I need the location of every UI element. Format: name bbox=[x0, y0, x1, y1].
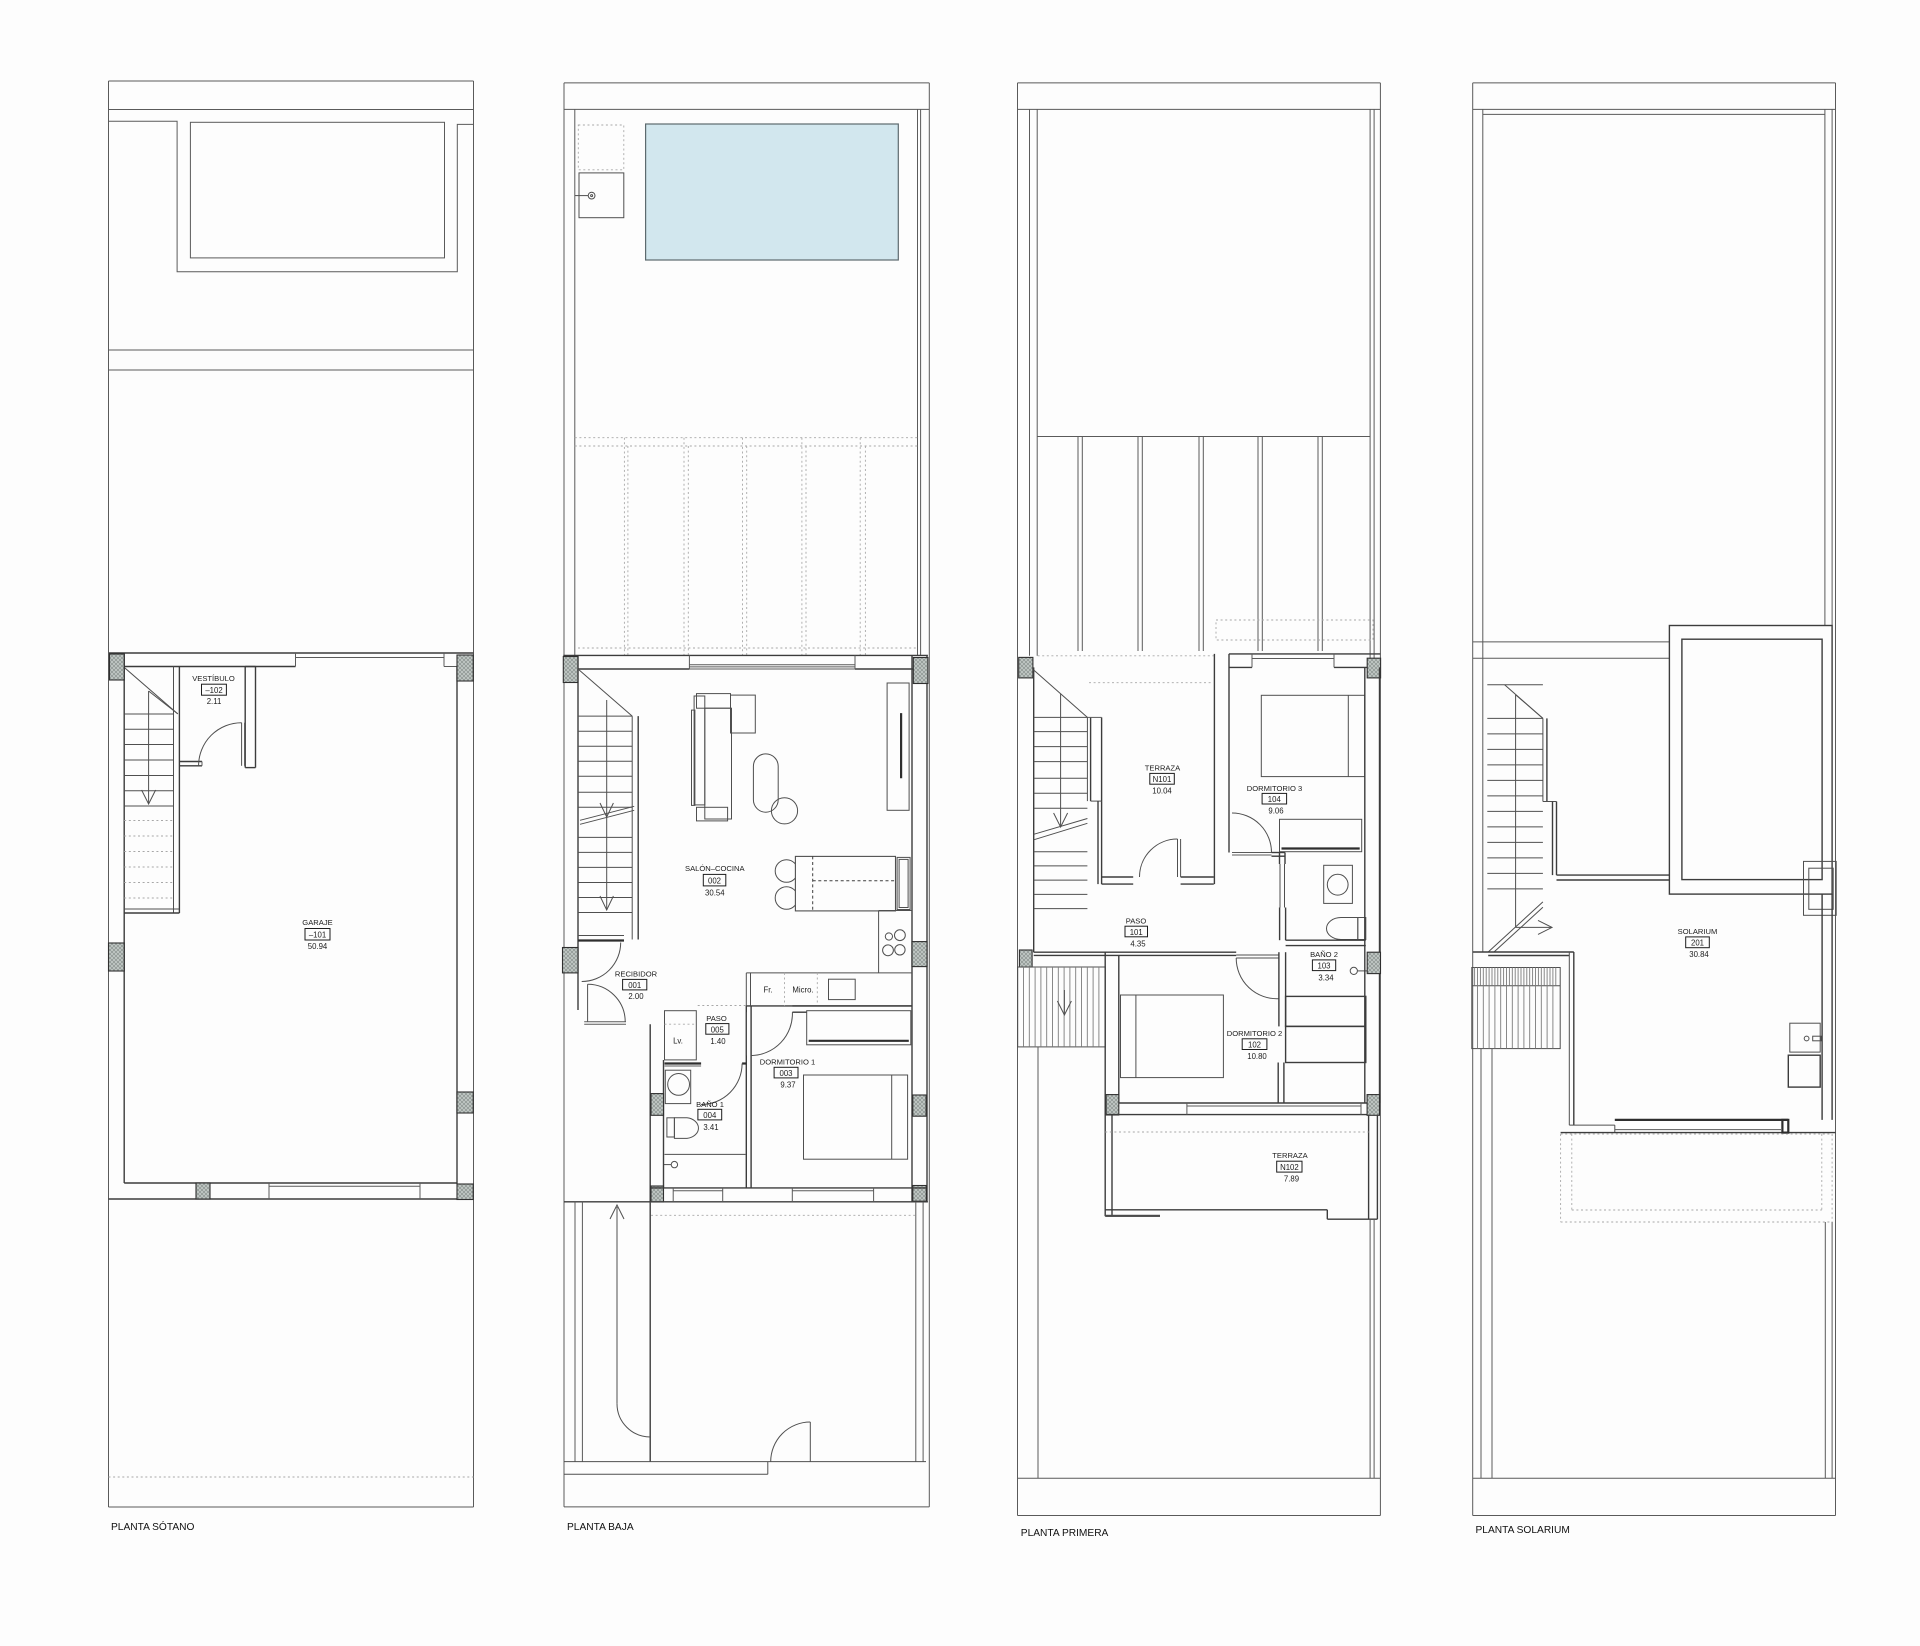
svg-text:002: 002 bbox=[708, 877, 721, 886]
svg-text:PLANTA BAJA: PLANTA BAJA bbox=[567, 1522, 634, 1533]
svg-text:TERRAZA: TERRAZA bbox=[1145, 764, 1181, 773]
svg-text:104: 104 bbox=[1268, 795, 1282, 804]
svg-text:001: 001 bbox=[628, 981, 641, 990]
svg-text:–102: –102 bbox=[205, 686, 222, 695]
svg-text:005: 005 bbox=[711, 1025, 725, 1034]
svg-text:GARAJE: GARAJE bbox=[302, 918, 332, 927]
svg-text:DORMITORIO 2: DORMITORIO 2 bbox=[1227, 1029, 1283, 1038]
svg-text:N102: N102 bbox=[1280, 1163, 1299, 1172]
svg-text:50.94: 50.94 bbox=[308, 942, 328, 951]
svg-text:RECIBIDOR: RECIBIDOR bbox=[615, 970, 658, 979]
svg-text:1.40: 1.40 bbox=[710, 1037, 726, 1046]
svg-text:9.06: 9.06 bbox=[1268, 807, 1283, 816]
svg-text:PASO: PASO bbox=[1126, 917, 1147, 926]
svg-text:4.35: 4.35 bbox=[1130, 940, 1146, 949]
svg-text:30.84: 30.84 bbox=[1689, 950, 1709, 959]
svg-text:Micro.: Micro. bbox=[792, 986, 813, 995]
svg-text:TERRAZA: TERRAZA bbox=[1272, 1151, 1308, 1160]
svg-text:30.54: 30.54 bbox=[705, 889, 725, 898]
svg-text:103: 103 bbox=[1317, 962, 1330, 971]
svg-text:7.89: 7.89 bbox=[1284, 1175, 1299, 1184]
svg-text:SOLARIUM: SOLARIUM bbox=[1678, 927, 1718, 936]
svg-text:Lv.: Lv. bbox=[673, 1037, 683, 1046]
svg-text:101: 101 bbox=[1130, 928, 1143, 937]
svg-text:3.34: 3.34 bbox=[1318, 973, 1334, 982]
svg-text:102: 102 bbox=[1248, 1041, 1261, 1050]
svg-text:DORMITORIO 3: DORMITORIO 3 bbox=[1247, 784, 1303, 793]
svg-text:003: 003 bbox=[779, 1069, 792, 1078]
svg-text:SALÓN–COCINA: SALÓN–COCINA bbox=[685, 864, 745, 873]
svg-text:PLANTA PRIMERA: PLANTA PRIMERA bbox=[1021, 1528, 1109, 1539]
svg-text:10.04: 10.04 bbox=[1152, 787, 1172, 796]
svg-text:201: 201 bbox=[1691, 939, 1704, 948]
svg-text:10.80: 10.80 bbox=[1247, 1052, 1267, 1061]
svg-text:PLANTA SÓTANO: PLANTA SÓTANO bbox=[111, 1520, 194, 1533]
svg-text:N101: N101 bbox=[1153, 775, 1172, 784]
svg-text:004: 004 bbox=[703, 1111, 717, 1120]
svg-text:2.11: 2.11 bbox=[207, 697, 222, 706]
svg-text:VESTÍBULO: VESTÍBULO bbox=[192, 674, 235, 683]
svg-text:BAÑO 1: BAÑO 1 bbox=[696, 1100, 724, 1109]
svg-text:3.41: 3.41 bbox=[703, 1123, 718, 1132]
svg-text:–101: –101 bbox=[309, 931, 326, 940]
svg-text:9.37: 9.37 bbox=[780, 1081, 795, 1090]
svg-text:BAÑO 2: BAÑO 2 bbox=[1310, 950, 1338, 959]
svg-text:2.00: 2.00 bbox=[628, 992, 644, 1001]
svg-text:DORMITORIO 1: DORMITORIO 1 bbox=[760, 1058, 816, 1067]
svg-text:Fr.: Fr. bbox=[763, 986, 772, 995]
svg-text:PASO: PASO bbox=[706, 1014, 727, 1023]
svg-text:PLANTA SOLARIUM: PLANTA SOLARIUM bbox=[1476, 1525, 1570, 1536]
